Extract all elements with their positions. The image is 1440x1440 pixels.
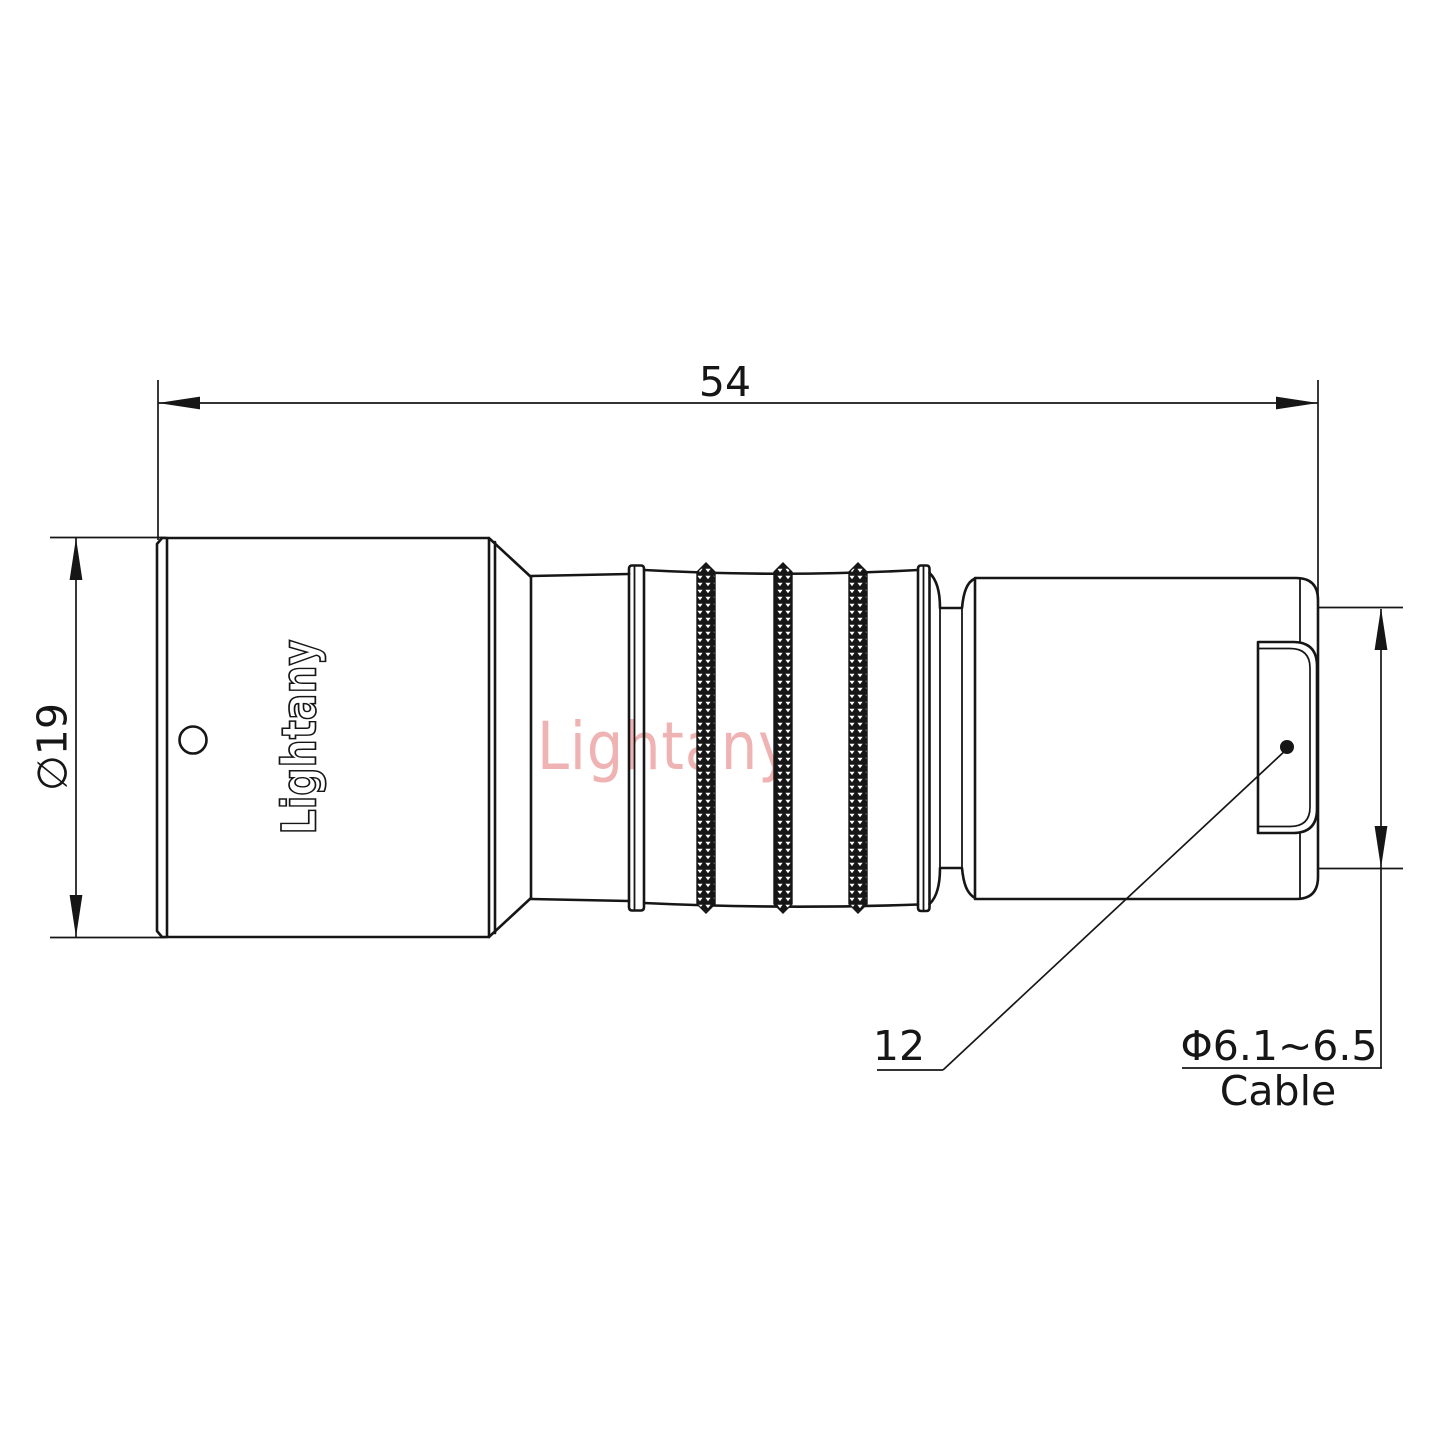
arrowhead-top	[1375, 608, 1388, 650]
knurl-band	[774, 563, 792, 913]
dimension-front-diameter: ∅19	[28, 538, 166, 938]
brand-engraving: Lightany	[272, 640, 327, 835]
dimension-length-value: 54	[699, 358, 751, 406]
cable-label: Cable	[1220, 1067, 1336, 1115]
arrowhead-left	[158, 397, 200, 410]
knurl-band	[697, 563, 715, 913]
dimension-diameter-value: ∅19	[28, 703, 76, 791]
arrowhead-right	[1276, 397, 1318, 410]
relief-groove	[930, 573, 976, 904]
neck-bottom-edge	[531, 899, 629, 901]
neck-top-edge	[531, 574, 629, 576]
groove-bottom-profile	[930, 868, 976, 904]
groove-top-profile	[930, 573, 976, 608]
rear-ref-value: 12	[873, 1022, 925, 1070]
dimension-overall-length: 54	[158, 358, 1318, 604]
cable-nut	[975, 578, 1318, 899]
knurl-band	[849, 563, 867, 913]
connector-technical-drawing: Lightany Lightany	[0, 0, 1440, 1440]
cable-diameter-value: Φ6.1~6.5	[1180, 1022, 1377, 1070]
mounting-hole	[180, 727, 207, 754]
front-cap-outer-edge	[157, 538, 162, 937]
arrowhead-top	[70, 538, 83, 580]
arrowhead-bottom	[1375, 826, 1388, 868]
front-body: Lightany	[157, 538, 531, 937]
watermark-text: Lightany	[537, 708, 793, 785]
arrowhead-bottom	[70, 895, 83, 937]
cable-bushing-outline	[1258, 642, 1317, 833]
leader-reference-dot	[1280, 740, 1294, 754]
drawing-canvas: Lightany Lightany	[0, 0, 1440, 1440]
